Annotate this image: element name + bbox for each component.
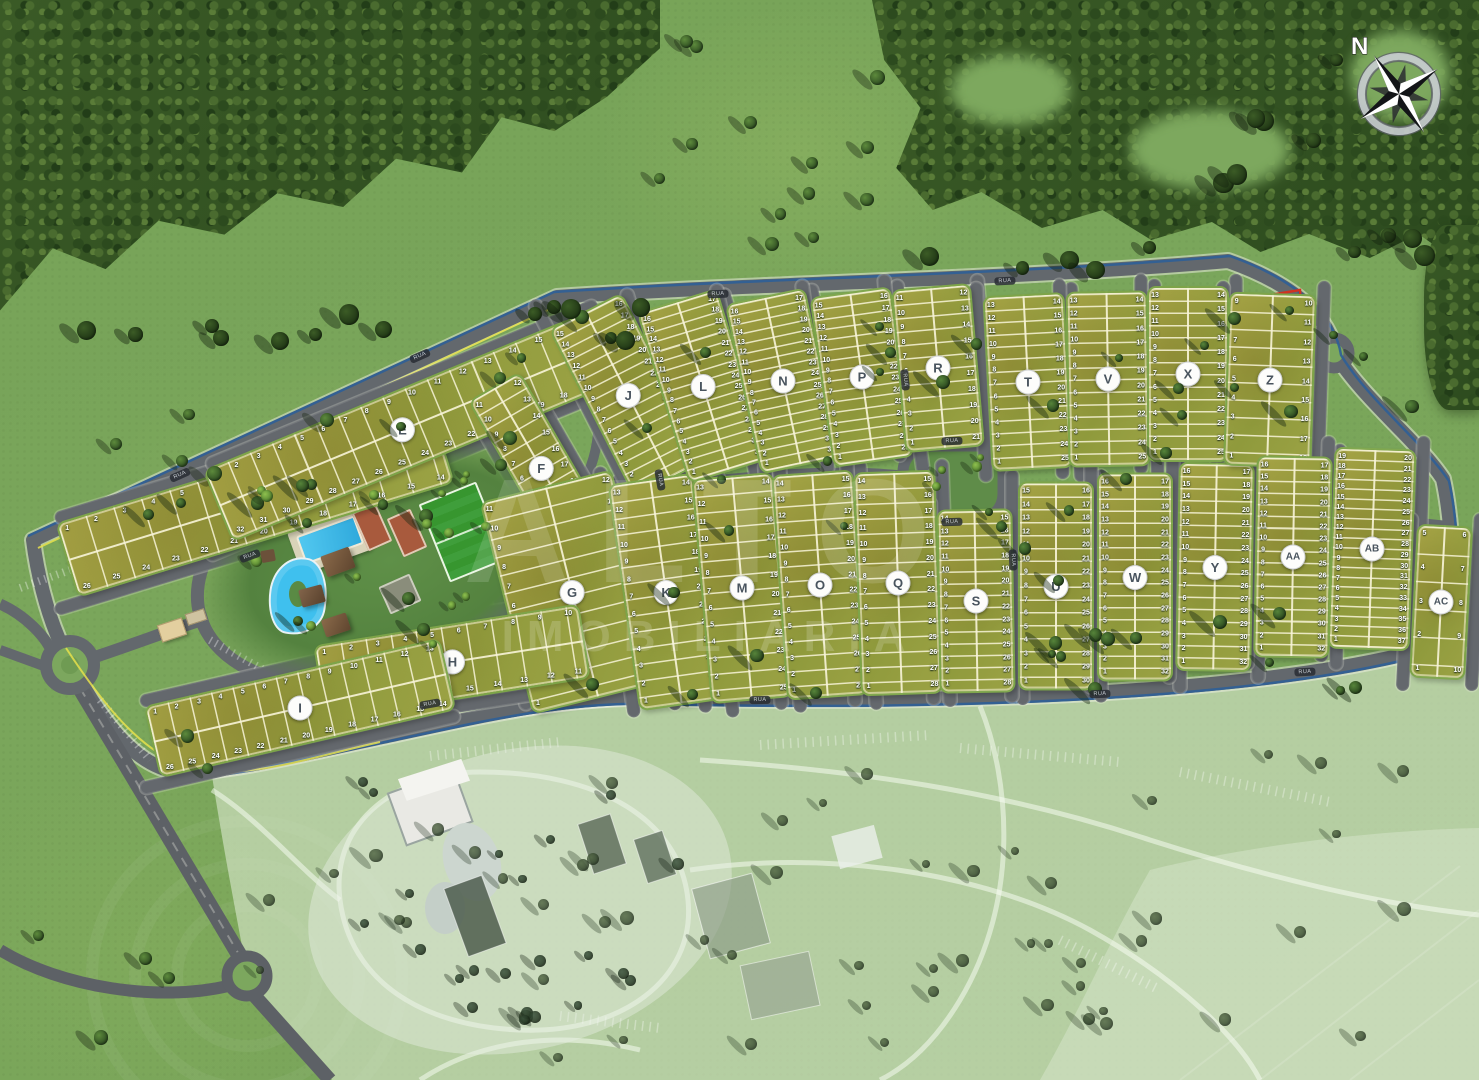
lot-number: 21 (848, 571, 856, 578)
lot-number: 10 (1335, 544, 1343, 551)
lot-number: 16 (1337, 483, 1345, 490)
lot-number: 14 (1337, 504, 1345, 511)
block-label-V[interactable]: V (1096, 367, 1121, 392)
lot-number: 8 (902, 338, 906, 345)
lot-number: 15 (556, 331, 564, 338)
lot-number: 29 (1082, 664, 1090, 671)
lot-number: 14 (858, 478, 866, 485)
lot-number: 3 (122, 508, 126, 515)
lot-number: 25 (929, 633, 937, 640)
lot-number: 15 (466, 685, 474, 692)
lot-number: 13 (520, 677, 528, 684)
lot-number: 11 (1182, 531, 1189, 538)
block-label-I[interactable]: I (288, 696, 313, 721)
lot-number: 17 (1243, 469, 1251, 476)
lot-number: 6 (754, 410, 758, 417)
lot-number: 20 (1137, 382, 1145, 389)
lot-number: 7 (829, 389, 833, 396)
lot-number: 12 (859, 510, 867, 517)
lot-number: 14 (649, 336, 657, 343)
lot-number: 20 (1217, 378, 1225, 385)
block-label-Q[interactable]: Q (886, 571, 911, 596)
lot-number: 18 (627, 324, 635, 331)
lot-number: 16 (1054, 327, 1062, 334)
lot-number: 13 (987, 302, 995, 309)
lot-number: 9 (1103, 567, 1107, 574)
lot-number: 10 (1305, 300, 1313, 307)
lot-number: 5 (1232, 375, 1236, 382)
lot-number: 21 (1161, 529, 1169, 536)
lot-number: 12 (960, 289, 968, 296)
lot-number: 6 (1073, 389, 1077, 396)
lot-number: 7 (944, 604, 948, 611)
lot-number: 13 (1260, 498, 1268, 505)
lot-number: 9 (748, 379, 752, 386)
lot-number: 13 (1070, 298, 1078, 305)
lot-number: 3 (713, 656, 717, 663)
lot-number: 5 (430, 632, 434, 639)
lot-number: 9 (538, 615, 542, 622)
lot-numbers: 202122232425262728293031323334353637 (1397, 455, 1414, 645)
lot-number: 26 (1319, 572, 1327, 579)
lot-number: 7 (1336, 575, 1340, 582)
lot-number: 32 (236, 526, 244, 533)
lot-number: 13 (484, 358, 492, 365)
lot-number: 3 (1260, 620, 1264, 627)
lot-number: 5 (1335, 595, 1339, 602)
lot-number: 10 (1101, 554, 1109, 561)
lot-number: 16 (1183, 468, 1191, 475)
lot-number: 3 (866, 652, 870, 659)
lot-number: 8 (365, 408, 369, 415)
lot-number: 7 (1261, 571, 1265, 578)
lot-number: 1 (322, 649, 326, 656)
lot-number: 6 (1463, 532, 1467, 539)
block-X[interactable]: 1234567891011121314151617181920212223242… (1147, 286, 1229, 462)
lot-number: 1 (997, 459, 1001, 466)
lot-number: 1 (1259, 644, 1263, 651)
lot-number: 12 (1101, 529, 1109, 536)
lot-number: 18 (319, 511, 327, 518)
lot-number: 23 (1319, 536, 1327, 543)
lot-number: 12 (1151, 305, 1159, 312)
lot-number: 8 (1073, 363, 1077, 370)
block-S[interactable]: 1234567891011121314151617181920212223242… (936, 508, 1015, 693)
lot-number: 4 (619, 450, 623, 457)
lot-number: 5 (300, 435, 304, 442)
lot-number: 24 (142, 565, 150, 572)
block-label-AA[interactable]: AA (1281, 545, 1306, 570)
lot-number: 20 (302, 732, 310, 739)
lot-number: 12 (656, 357, 664, 364)
block-label-J[interactable]: J (616, 383, 641, 408)
lot-number: 13 (1303, 358, 1311, 365)
lot-number: 23 (1161, 554, 1169, 561)
lot-number: 2 (235, 462, 239, 469)
lot-number: 24 (1319, 548, 1327, 555)
lot-numbers: 12345678910111213141516 (1256, 461, 1269, 651)
lot-number: 24 (1138, 439, 1146, 446)
lot-number: 6 (457, 628, 461, 635)
lot-number: 26 (1082, 623, 1090, 630)
block-label-AB[interactable]: AB (1360, 537, 1385, 562)
lot-number: 7 (1103, 592, 1107, 599)
lot-number: 27 (1241, 596, 1249, 603)
lot-number: 18 (968, 386, 976, 393)
lot-number: 14 (762, 479, 770, 486)
lot-number: 18 (798, 306, 806, 313)
lot-number: 2 (909, 425, 913, 432)
block-label-O[interactable]: O (808, 573, 833, 598)
lot-number: 3 (1153, 423, 1157, 430)
lot-number: 20 (802, 327, 810, 334)
lot-number: 15 (1217, 306, 1225, 313)
lot-number: 10 (408, 389, 416, 396)
lot-number: 24 (211, 753, 219, 760)
lot-number: 10 (1454, 667, 1462, 674)
block-Z[interactable]: 123456789101112131415161718Z (1223, 292, 1317, 469)
lot-numbers: 17181920212223242526272829303132 (1160, 479, 1170, 676)
lot-number: 4 (1335, 605, 1339, 612)
block-label-M[interactable]: M (730, 576, 755, 601)
lot-number: 18 (348, 722, 356, 729)
lot-number: 5 (832, 410, 836, 417)
lot-number: 19 (325, 727, 333, 734)
lot-numbers: 12345678910111213141516 (1178, 468, 1191, 665)
block-label-R[interactable]: R (926, 356, 951, 381)
lot-number: 2 (1334, 625, 1338, 632)
lot-number: 21 (1002, 591, 1010, 598)
lot-number: 16 (393, 711, 401, 718)
lot-number: 9 (900, 324, 904, 331)
lot-numbers: 12345678910111213 (1150, 292, 1160, 456)
lot-number: 13 (426, 645, 434, 652)
lot-number: 13 (818, 324, 826, 331)
lot-number: 17 (1136, 339, 1144, 346)
lot-number: 17 (348, 502, 356, 509)
lot-number: 9 (1024, 569, 1028, 576)
lot-number: 26 (1402, 520, 1410, 527)
lot-number: 28 (931, 681, 939, 688)
lot-number: 22 (1138, 411, 1146, 418)
lot-number: 6 (676, 418, 680, 425)
lot-number: 9 (1261, 547, 1265, 554)
lot-number: 11 (779, 528, 786, 535)
lot-number: 9 (944, 579, 948, 586)
lot-number: 20 (1161, 516, 1169, 523)
lot-number: 15 (407, 484, 415, 491)
lot-number: 13 (613, 489, 621, 496)
lot-number: 1 (1229, 453, 1233, 460)
lot-numbers: 678910 (1452, 532, 1469, 674)
lot-number: 25 (398, 460, 406, 467)
lot-number: 14 (1101, 504, 1109, 511)
lot-number: 8 (511, 619, 515, 626)
lot-number: 11 (699, 519, 706, 526)
lot-number: 16 (880, 293, 888, 300)
lot-number: 16 (965, 354, 973, 361)
lot-number: 11 (1070, 324, 1077, 331)
lot-number: 22 (1002, 603, 1010, 610)
lot-number: 7 (1461, 566, 1465, 573)
lot-number: 9 (591, 396, 595, 403)
lot-number: 8 (1103, 580, 1107, 587)
lot-number: 8 (1153, 357, 1157, 364)
lot-number: 14 (509, 348, 517, 355)
lot-number: 34 (1399, 606, 1407, 613)
block-label-Z[interactable]: Z (1258, 368, 1283, 393)
lot-number: 29 (1318, 609, 1326, 616)
lot-numbers: 12345678910111213 (986, 302, 1005, 466)
lot-number: 1 (644, 697, 648, 704)
lot-number: 13 (961, 306, 969, 313)
lot-number: 5 (905, 382, 909, 389)
lot-number: 5 (788, 624, 792, 631)
lot-number: 20 (887, 340, 895, 347)
lot-number: 19 (1338, 453, 1346, 460)
lot-number: 4 (637, 645, 641, 652)
lot-number: 8 (502, 564, 506, 571)
lot-number: 28 (1082, 650, 1090, 657)
block-label-P[interactable]: P (850, 365, 875, 390)
lot-number: 21 (888, 351, 896, 358)
block-AC[interactable]: 12345678910AC (1409, 524, 1473, 681)
lot-number: 28 (1161, 618, 1169, 625)
lot-number: 10 (491, 525, 499, 532)
block-label-L[interactable]: L (691, 374, 716, 399)
lot-number: 7 (752, 399, 756, 406)
lot-number: 25 (1138, 453, 1146, 460)
lot-number: 7 (343, 417, 347, 424)
lot-number: 7 (673, 408, 677, 415)
lot-number: 13 (696, 484, 704, 491)
lot-number: 32 (1239, 659, 1247, 666)
lot-number: 6 (322, 426, 326, 433)
lot-number: 15 (923, 476, 931, 483)
lot-number: 27 (1319, 584, 1327, 591)
lot-number: 10 (1070, 337, 1078, 344)
lot-number: 5 (710, 622, 714, 629)
lot-number: 15 (1260, 474, 1268, 481)
lot-number: 1 (1334, 636, 1338, 643)
lot-number: 10 (584, 385, 592, 392)
block-I[interactable]: 1234567891011121314151617181920212223242… (144, 638, 457, 778)
lot-number: 2 (836, 443, 840, 450)
lot-number: 14 (1217, 292, 1225, 299)
lot-number: 11 (1336, 534, 1343, 541)
lot-number: 4 (1153, 410, 1157, 417)
lot-number: 16 (765, 516, 773, 523)
lot-number: 3 (1335, 615, 1339, 622)
lot-number: 1 (213, 471, 217, 478)
lot-number: 12 (1260, 510, 1268, 517)
lot-number: 17 (621, 312, 629, 319)
lot-number: 32 (1400, 584, 1408, 591)
lot-number: 7 (993, 380, 997, 387)
lot-number: 4 (907, 396, 911, 403)
lot-number: 5 (945, 630, 949, 637)
lot-number: 9 (1235, 298, 1239, 305)
block-label-AC[interactable]: AC (1429, 590, 1454, 615)
lot-number: 15 (1022, 488, 1030, 495)
block-R[interactable]: 123456789101112131415161718192021R (891, 283, 985, 453)
lot-number: 4 (833, 421, 837, 428)
lot-number: 23 (444, 440, 452, 447)
lot-number: 9 (862, 557, 866, 564)
lot-number: 11 (989, 328, 996, 335)
lot-number: 28 (329, 488, 337, 495)
block-label-Y[interactable]: Y (1203, 555, 1228, 580)
lot-number: 22 (1161, 542, 1169, 549)
lot-number: 15 (733, 319, 741, 326)
lot-number: 16 (1101, 479, 1109, 486)
block-label-X[interactable]: X (1176, 362, 1201, 387)
lot-number: 31 (1400, 573, 1408, 580)
lot-number: 12 (1022, 528, 1030, 535)
lot-number: 21 (1082, 555, 1090, 562)
lot-number: 26 (1241, 583, 1249, 590)
block-label-F[interactable]: F (529, 456, 554, 481)
lot-number: 2 (997, 445, 1001, 452)
lot-number: 21 (280, 738, 288, 745)
lot-number: 23 (1138, 425, 1146, 432)
masterplan-map: 1234567891011121314151617181920212223242… (0, 0, 1479, 1080)
lot-number: 12 (573, 363, 581, 370)
block-label-S[interactable]: S (964, 589, 989, 614)
block-U[interactable]: 1234567891011121314151617181920212223242… (1018, 482, 1094, 691)
lot-number: 30 (1082, 677, 1090, 684)
lot-number: 21 (927, 570, 935, 577)
compass-n-label: N (1351, 33, 1368, 60)
lot-number: 13 (523, 396, 531, 403)
block-label-G[interactable]: G (560, 580, 585, 605)
lot-number: 28 (1401, 541, 1409, 548)
lot-number: 30 (1161, 643, 1169, 650)
lot-number: 28 (1240, 608, 1248, 615)
lot-number: 19 (633, 336, 641, 343)
block-label-W[interactable]: W (1123, 565, 1148, 590)
lot-number: 9 (783, 560, 787, 567)
block-Y[interactable]: 1234567891011121314151617181920212223242… (1175, 462, 1255, 672)
lot-number: 16 (1261, 461, 1269, 468)
lot-number: 25 (1082, 610, 1090, 617)
lot-number: 1 (65, 525, 69, 532)
lot-number: 29 (1161, 630, 1169, 637)
lot-number: 14 (682, 480, 690, 487)
lot-number: 15 (542, 429, 550, 436)
lot-numbers: 123456789 (1226, 298, 1242, 460)
lot-number: 2 (1024, 664, 1028, 671)
lot-number: 16 (1301, 416, 1309, 423)
lot-number: 6 (1336, 585, 1340, 592)
lot-number: 11 (574, 668, 581, 675)
lot-number: 7 (1233, 337, 1237, 344)
block-label-E[interactable]: E (390, 418, 415, 443)
block-V[interactable]: 1234567891011121314151617181920212223242… (1065, 290, 1150, 467)
lot-number: 22 (1242, 532, 1250, 539)
lot-number: 20 (1320, 499, 1328, 506)
lot-number: 7 (1024, 596, 1028, 603)
lot-number: 15 (1301, 397, 1309, 404)
lot-number: 11 (821, 346, 828, 353)
block-AB[interactable]: 1234567891011121314151617181920212223242… (1328, 447, 1417, 652)
lot-number: 14 (1053, 298, 1061, 305)
lot-number: 4 (758, 430, 762, 437)
lot-number: 22 (467, 431, 475, 438)
lot-number: 3 (835, 432, 839, 439)
lot-number: 10 (989, 341, 997, 348)
lot-number: 22 (1404, 477, 1412, 484)
block-label-U[interactable]: U (1044, 574, 1069, 599)
block-label-N[interactable]: N (771, 369, 796, 394)
lot-number: 6 (512, 603, 516, 610)
lot-number: 15 (1101, 491, 1109, 498)
lot-number: 11 (1101, 542, 1108, 549)
lot-number: 1 (1074, 455, 1078, 462)
block-AA[interactable]: 1234567891011121314151617181920212223242… (1253, 455, 1333, 658)
lot-number: 2 (1074, 441, 1078, 448)
lot-number: 10 (620, 541, 628, 548)
lot-number: 13 (737, 339, 745, 346)
lot-number: 14 (1260, 486, 1268, 493)
lot-blocks: 1234567891011121314151617181920212223242… (0, 0, 1479, 1080)
lot-number: 8 (670, 397, 674, 404)
lot-number: 4 (403, 636, 407, 643)
lot-number: 12 (1336, 524, 1344, 531)
block-Q[interactable]: 1234567891011121314151617181920212223242… (853, 470, 943, 697)
lot-number: 5 (1074, 402, 1078, 409)
lot-number: 10 (860, 541, 868, 548)
lot-number: 27 (930, 665, 938, 672)
block-label-T[interactable]: T (1016, 370, 1041, 395)
lot-number: 9 (667, 387, 671, 394)
lot-number: 27 (352, 479, 360, 486)
lot-number: 18 (769, 553, 777, 560)
lot-number: 18 (1217, 349, 1225, 356)
lot-number: 3 (624, 461, 628, 468)
lot-number: 24 (1161, 567, 1169, 574)
lot-number: 6 (1233, 356, 1237, 363)
lot-number: 7 (786, 592, 790, 599)
lot-number: 33 (1399, 595, 1407, 602)
lot-number: 18 (1320, 475, 1328, 482)
lot-number: 23 (728, 362, 736, 369)
lot-number: 25 (189, 759, 197, 766)
lot-number: 6 (262, 683, 266, 690)
block-T[interactable]: 1234567891011121314151617181920212223242… (982, 292, 1073, 472)
lot-number: 20 (847, 555, 855, 562)
lot-number: 15 (815, 302, 823, 309)
lot-number: 6 (944, 617, 948, 624)
lot-number: 21 (1404, 466, 1412, 473)
lot-number: 8 (627, 576, 631, 583)
lot-number: 30 (283, 507, 291, 514)
lot-number: 14 (962, 322, 970, 329)
lot-number: 24 (1060, 441, 1068, 448)
lot-number: 7 (1153, 370, 1157, 377)
lot-number: 29 (306, 498, 314, 505)
lot-number: 10 (780, 544, 788, 551)
lot-number: 2 (866, 667, 870, 674)
lot-number: 8 (827, 378, 831, 385)
lot-number: 7 (511, 461, 515, 468)
lot-number: 19 (885, 328, 893, 335)
lot-number: 12 (778, 512, 786, 519)
lot-number: 8 (785, 576, 789, 583)
block-label-K[interactable]: K (654, 580, 679, 605)
block-W[interactable]: 1234567891011121314151617181920212223242… (1097, 473, 1173, 682)
lot-number: 5 (1024, 623, 1028, 630)
